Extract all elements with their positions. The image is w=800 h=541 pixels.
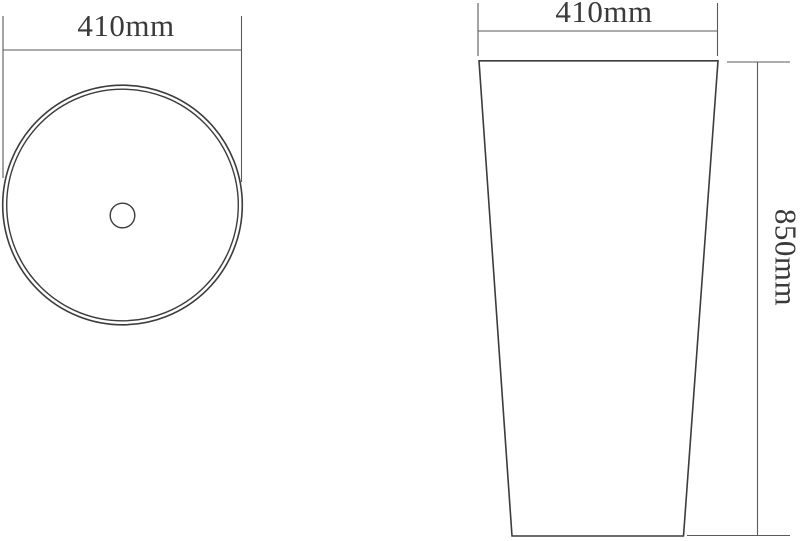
pedestal-outline <box>479 61 718 536</box>
front-view-height-label: 850mm <box>771 183 800 333</box>
basin-outer-rim-circle <box>3 85 243 325</box>
front-view-width-label: 410mm <box>529 0 679 27</box>
top-view-width-label: 410mm <box>51 10 201 41</box>
drain-hole-circle <box>110 203 135 228</box>
technical-drawing: 410mm 410mm 850mm <box>0 0 800 541</box>
basin-inner-rim-circle <box>7 89 239 321</box>
top-view <box>3 16 243 325</box>
drawing-canvas <box>0 0 800 541</box>
front-view <box>478 3 790 536</box>
